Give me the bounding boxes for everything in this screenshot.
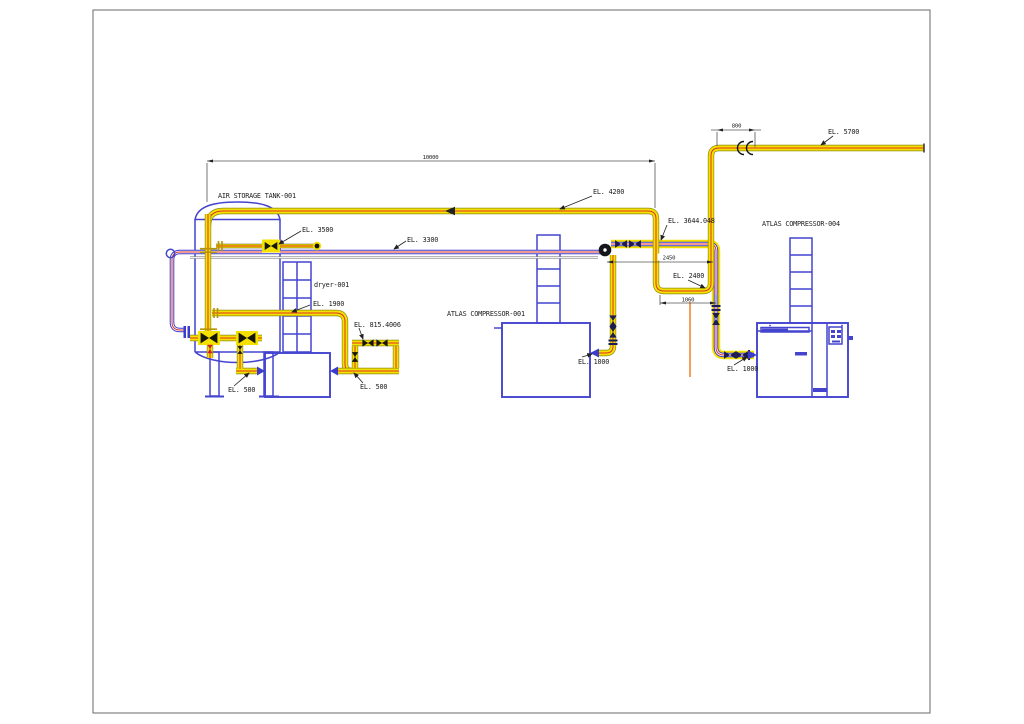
pipe-compressor-001-discharge: [598, 255, 613, 353]
text-labels: AIR STORAGE TANK-001 dryer-001 ATLAS COM…: [218, 128, 859, 394]
tank-leg: [210, 352, 219, 396]
el-3500-label: EL. 3500: [302, 226, 333, 234]
el-5700-label: EL. 5700: [828, 128, 859, 136]
compressor-001-stack: [537, 235, 560, 323]
compressor-001-body: [502, 323, 590, 397]
dryer-body: [265, 353, 330, 397]
el-4200-label: EL. 4200: [593, 188, 624, 196]
compressor-001-label: ATLAS COMPRESSOR-001: [447, 310, 525, 318]
dryer-label: dryer-001: [314, 281, 349, 289]
el-1900-label: EL. 1900: [313, 300, 344, 308]
leader-lines: [234, 136, 833, 386]
el-1000-compressor1-label: EL. 1000: [578, 358, 609, 366]
el-1000-compressor4-label: EL. 1000: [727, 365, 758, 373]
el-500-tank-label: EL. 500: [228, 386, 255, 394]
cad-canvas: 10000 800 2450 1060 AIR STORAGE TANK-001…: [0, 0, 1024, 724]
dim-2450: 2450: [663, 256, 676, 262]
dim-10000: 10000: [423, 155, 439, 161]
el-3644-label: EL. 3644.048: [668, 217, 715, 225]
dim-800: 800: [732, 124, 742, 130]
el-500-dryer-label: EL. 500: [360, 383, 387, 391]
compressor-004: [757, 238, 853, 397]
compressor-004-body: [757, 323, 848, 397]
piping-elevation-drawing: 10000 800 2450 1060 AIR STORAGE TANK-001…: [0, 0, 1024, 724]
pipe-el3300: [166, 249, 600, 330]
pipe-end-icon: [315, 244, 320, 249]
flange-icon: [590, 349, 599, 358]
compressor-004-nameplate: [762, 329, 788, 332]
compressor-004-label: ATLAS COMPRESSOR-004: [762, 220, 840, 228]
flange-icon: [330, 367, 338, 376]
el-815-label: EL. 815.4006: [354, 321, 401, 329]
el-3300-label: EL. 3300: [407, 236, 438, 244]
el-2400-label: EL. 2400: [673, 272, 704, 280]
dim-1060: 1060: [682, 298, 695, 304]
compressor-004-stack: [790, 238, 812, 323]
tank-label: AIR STORAGE TANK-001: [218, 192, 296, 200]
